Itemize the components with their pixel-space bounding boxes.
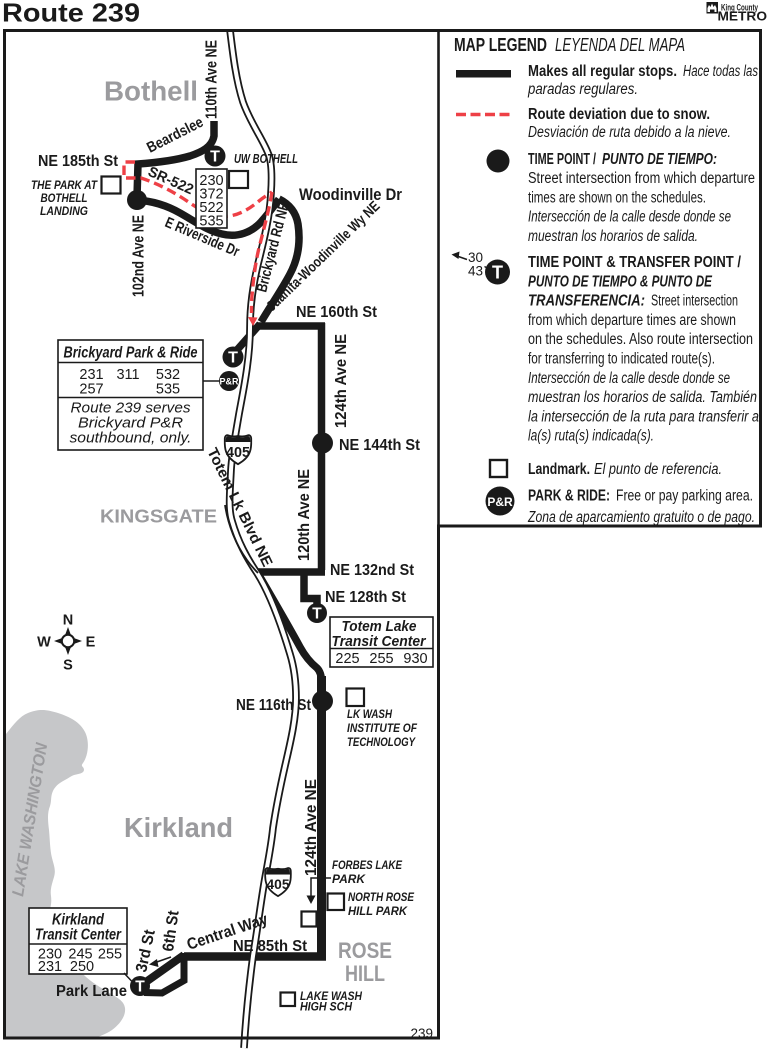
svg-text:257: 257 xyxy=(79,382,103,398)
svg-text:muestran los horarios de salid: muestran los horarios de salida. También xyxy=(528,389,757,406)
svg-text:from which departure times are: from which departure times are shown xyxy=(528,312,736,329)
svg-text:ROSE: ROSE xyxy=(338,938,392,963)
svg-text:southbound, only.: southbound, only. xyxy=(70,430,192,447)
svg-text:BOTHELL: BOTHELL xyxy=(41,191,88,205)
svg-text:43: 43 xyxy=(468,264,483,279)
svg-text:NORTH ROSE: NORTH ROSE xyxy=(348,890,415,904)
svg-text:TECHNOLOGY: TECHNOLOGY xyxy=(347,735,416,749)
svg-text:NE 116th St: NE 116th St xyxy=(236,697,312,714)
svg-text:TRANSFERENCIA:: TRANSFERENCIA: xyxy=(528,293,645,310)
svg-text:NE 185th St: NE 185th St xyxy=(38,153,119,170)
svg-text:THE PARK AT: THE PARK AT xyxy=(31,178,98,192)
svg-text:T: T xyxy=(228,350,238,367)
svg-text:Kirkland: Kirkland xyxy=(124,812,233,843)
svg-text:paradas regulares.: paradas regulares. xyxy=(527,81,638,98)
svg-text:P&R: P&R xyxy=(219,377,239,387)
svg-text:124th Ave NE: 124th Ave NE xyxy=(333,334,350,428)
svg-text:S: S xyxy=(63,658,73,674)
svg-text:Zona de aparcamiento gratuito: Zona de aparcamiento gratuito o de pago. xyxy=(527,509,755,526)
svg-text:Transit Center: Transit Center xyxy=(332,633,427,650)
svg-text:LK WASH: LK WASH xyxy=(347,707,392,721)
svg-text:535: 535 xyxy=(156,382,180,398)
svg-text:NE 144th St: NE 144th St xyxy=(339,437,421,454)
svg-text:muestran los horarios de salid: muestran los horarios de salida. xyxy=(528,228,698,245)
svg-text:PARK: PARK xyxy=(332,872,366,886)
svg-text:Hace todas las: Hace todas las xyxy=(683,63,758,80)
svg-text:NE 160th St: NE 160th St xyxy=(296,304,378,321)
svg-text:535: 535 xyxy=(199,214,223,230)
svg-text:250: 250 xyxy=(70,959,94,975)
svg-text:El punto de referencia.: El punto de referencia. xyxy=(594,461,722,478)
svg-text:HIGH SCH: HIGH SCH xyxy=(300,1000,352,1014)
svg-text:Park Lane: Park Lane xyxy=(56,983,127,1000)
svg-text:T: T xyxy=(492,263,503,283)
svg-text:Landmark.: Landmark. xyxy=(528,461,590,478)
svg-text:Woodinville Dr: Woodinville Dr xyxy=(299,186,403,204)
svg-text:Makes all regular stops.: Makes all regular stops. xyxy=(528,63,677,80)
svg-text:LEYENDA DEL MAPA: LEYENDA DEL MAPA xyxy=(555,35,685,55)
svg-text:Transit Center: Transit Center xyxy=(35,927,122,944)
svg-text:NE 85th St: NE 85th St xyxy=(233,938,308,955)
svg-text:Bothell: Bothell xyxy=(104,76,198,107)
svg-text:E: E xyxy=(86,635,96,651)
svg-text:405: 405 xyxy=(226,445,250,461)
svg-text:930: 930 xyxy=(403,651,427,667)
svg-text:T: T xyxy=(135,979,145,996)
svg-text:for transferring to indicated: for transferring to indicated route(s). xyxy=(528,351,715,368)
svg-text:HILL PARK: HILL PARK xyxy=(348,904,408,918)
svg-text:255: 255 xyxy=(98,947,122,963)
svg-text:W: W xyxy=(37,635,51,651)
svg-text:NE 128th St: NE 128th St xyxy=(325,589,407,606)
svg-text:225: 225 xyxy=(335,651,359,667)
svg-text:SR-522: SR-522 xyxy=(145,164,195,198)
svg-text:HILL: HILL xyxy=(345,961,385,986)
svg-text:FORBES LAKE: FORBES LAKE xyxy=(332,858,403,872)
svg-text:la intersección de la ruta par: la intersección de la ruta para transfer… xyxy=(528,408,759,425)
svg-text:124th Ave NE: 124th Ave NE xyxy=(303,779,320,876)
svg-text:405: 405 xyxy=(267,876,290,892)
svg-text:on the schedules. Also route i: on the schedules. Also route intersectio… xyxy=(528,331,753,348)
svg-text:PUNTO DE TIEMPO & PUNTO DE: PUNTO DE TIEMPO & PUNTO DE xyxy=(528,273,712,290)
svg-text:Free or pay parking area.: Free or pay parking area. xyxy=(616,488,753,505)
svg-text:Intersección de la calle desde: Intersección de la calle desde donde se xyxy=(528,370,730,387)
svg-text:Desviación de ruta debido a la: Desviación de ruta debido a la nieve. xyxy=(528,124,731,141)
svg-text:METRO: METRO xyxy=(718,10,768,24)
svg-text:LANDING: LANDING xyxy=(40,204,88,218)
svg-text:Brickyard Park & Ride: Brickyard Park & Ride xyxy=(64,345,198,362)
svg-text:6th St: 6th St xyxy=(160,909,183,953)
svg-text:110th Ave NE: 110th Ave NE xyxy=(204,40,221,119)
svg-text:Street intersection: Street intersection xyxy=(651,293,738,310)
svg-text:PARK & RIDE:: PARK & RIDE: xyxy=(528,488,610,505)
svg-text:TIME POINT & TRANSFER POINT /: TIME POINT & TRANSFER POINT / xyxy=(528,254,742,271)
svg-text:KINGSGATE: KINGSGATE xyxy=(100,506,217,527)
svg-text:Street intersection from which: Street intersection from which departure xyxy=(528,170,755,187)
svg-text:T: T xyxy=(312,606,322,623)
svg-text:NE 132nd St: NE 132nd St xyxy=(330,562,415,579)
svg-text:255: 255 xyxy=(369,651,393,667)
svg-text:102nd Ave NE: 102nd Ave NE xyxy=(131,215,148,297)
svg-text:MAP LEGEND: MAP LEGEND xyxy=(454,35,547,55)
svg-text:INSTITUTE OF: INSTITUTE OF xyxy=(347,721,418,735)
svg-text:120th Ave NE: 120th Ave NE xyxy=(296,469,313,561)
svg-text:Intersección de la calle desde: Intersección de la calle desde donde se xyxy=(528,209,731,226)
svg-text:Route 239: Route 239 xyxy=(2,0,140,28)
svg-text:Route deviation due to snow.: Route deviation due to snow. xyxy=(528,106,710,123)
svg-text:la(s) ruta(s) indicada(s).: la(s) ruta(s) indicada(s). xyxy=(528,428,654,445)
svg-text:T: T xyxy=(210,149,220,166)
svg-text:231: 231 xyxy=(38,959,62,975)
svg-text:P&R: P&R xyxy=(487,495,513,509)
svg-text:PUNTO DE TIEMPO:: PUNTO DE TIEMPO: xyxy=(602,151,717,168)
svg-text:311: 311 xyxy=(116,367,139,383)
svg-text:3rd St: 3rd St xyxy=(133,928,159,974)
svg-text:UW BOTHELL: UW BOTHELL xyxy=(234,151,298,166)
svg-text:N: N xyxy=(63,613,73,629)
svg-text:TIME POINT /: TIME POINT / xyxy=(528,151,596,168)
svg-text:times are shown on the schedul: times are shown on the schedules. xyxy=(528,189,706,206)
